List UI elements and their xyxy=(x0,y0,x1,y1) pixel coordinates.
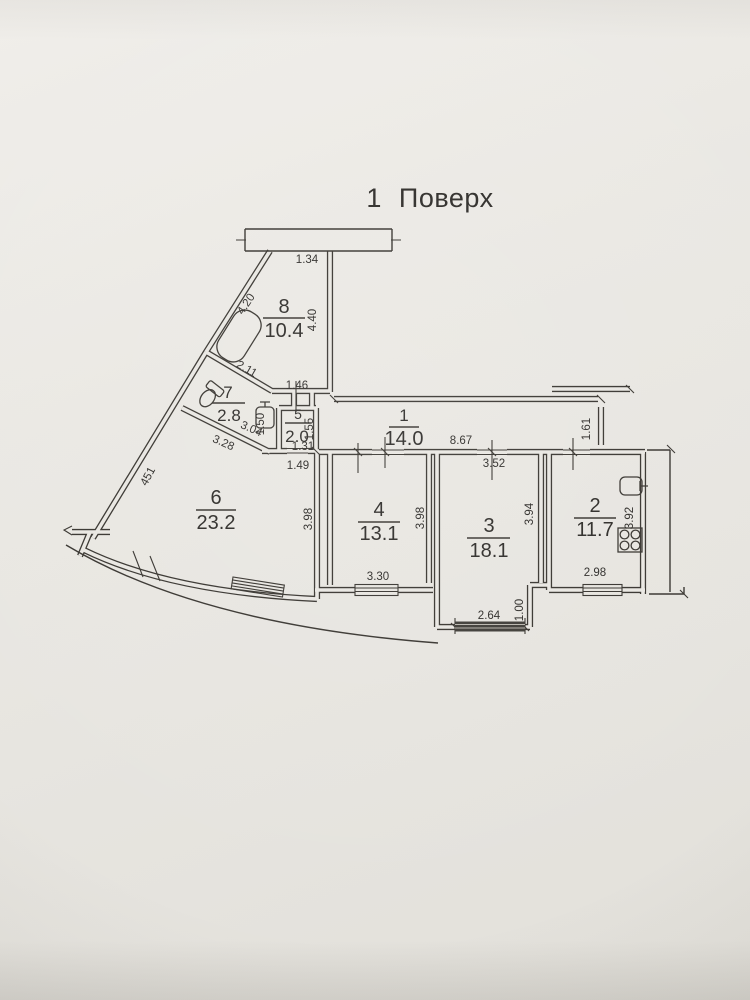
walls xyxy=(72,251,645,627)
dim-r3-top: 3.52 xyxy=(483,458,505,470)
scanned-floor-plan-page: 1 Поверх xyxy=(0,0,750,1000)
dim-outer-wall: 451 xyxy=(139,465,159,488)
dim-r3-side: 3.94 xyxy=(524,502,536,525)
dim-r2-window: 2.98 xyxy=(584,567,606,579)
room-4-number: 4 xyxy=(373,499,384,521)
room-6-label: 6 23.2 xyxy=(196,487,236,534)
page-title: 1 Поверх xyxy=(366,183,493,213)
dim-bay-width: 2.64 xyxy=(478,610,501,622)
dim-r2-side: 3.92 xyxy=(624,507,636,529)
dim-r4-window: 3.30 xyxy=(367,571,389,583)
room-8-label: 8 10.4 xyxy=(263,296,305,342)
room-1-label: 1 14.0 xyxy=(385,406,424,450)
dim-corridor-length: 8.67 xyxy=(450,435,472,447)
room-3-area: 18.1 xyxy=(470,540,509,562)
dim-r5-right: 1.55 xyxy=(304,418,316,440)
dim-balcony-top: 1.34 xyxy=(296,254,319,266)
room-1-area: 14.0 xyxy=(385,428,424,450)
room-7-label: 7 2.8 xyxy=(212,383,245,425)
dim-r4-side: 3.98 xyxy=(415,507,427,529)
dim-vestibule: 1.46 xyxy=(286,380,308,392)
room-1-number: 1 xyxy=(399,406,408,425)
room-5-number: 5 xyxy=(294,406,302,422)
dim-r5-door: 1.49 xyxy=(287,460,309,472)
right-balcony xyxy=(647,445,684,594)
top-balcony xyxy=(236,229,401,251)
room-8-area: 10.4 xyxy=(265,320,304,342)
window-room3-bay xyxy=(455,622,525,632)
room-2-number: 2 xyxy=(589,495,600,517)
room-7-number: 7 xyxy=(223,383,232,402)
room-7-area: 2.8 xyxy=(217,406,241,425)
room-4-area: 13.1 xyxy=(360,523,399,545)
dim-r5-inner: 1.31 xyxy=(292,441,314,453)
room-2-label: 2 11.7 xyxy=(574,495,616,541)
dim-bay-depth: 1.00 xyxy=(514,599,526,621)
room-4-label: 4 13.1 xyxy=(358,499,400,545)
dim-r6-side: 3.98 xyxy=(303,508,315,530)
room-3-number: 3 xyxy=(483,515,494,537)
dim-r8-right: 4.40 xyxy=(307,309,319,331)
dim-hall-end: 1.61 xyxy=(581,418,593,440)
stove-icon xyxy=(618,528,642,552)
room-2-area: 11.7 xyxy=(576,519,613,541)
room-6-number: 6 xyxy=(210,487,221,509)
window-room2 xyxy=(583,585,622,596)
room-3-label: 3 18.1 xyxy=(467,515,510,562)
floor-plan: 1 Поверх xyxy=(0,0,750,1000)
room-8-number: 8 xyxy=(278,296,289,318)
room-6-area: 23.2 xyxy=(197,512,236,534)
window-room4 xyxy=(355,585,398,596)
